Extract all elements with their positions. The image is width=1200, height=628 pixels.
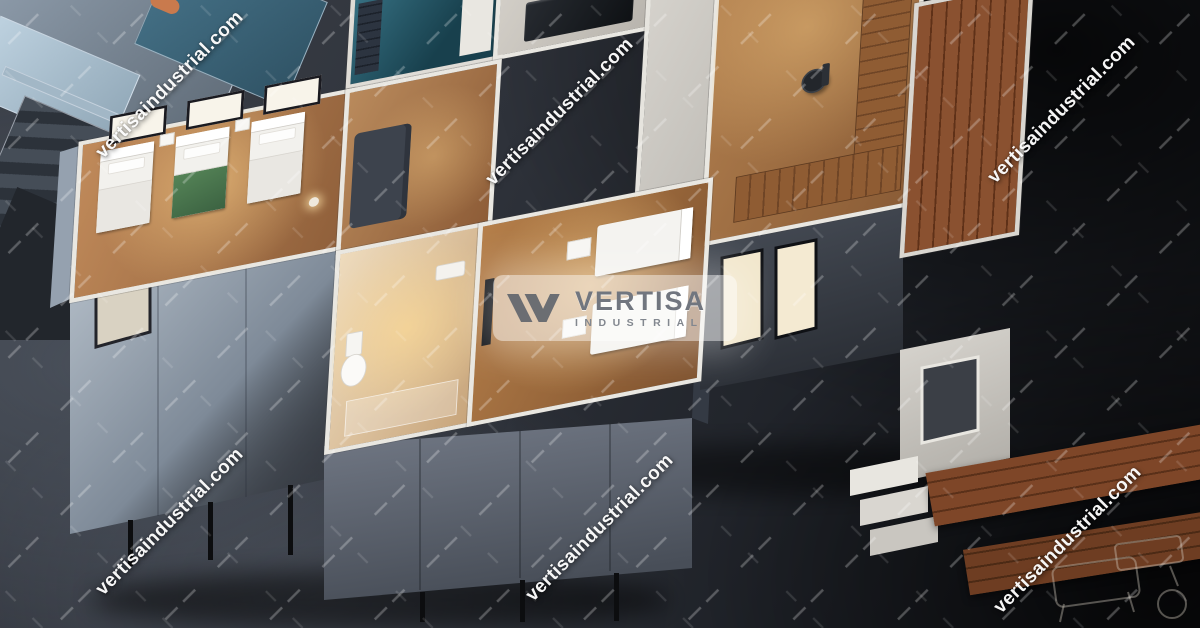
vertisa-logo-icon bbox=[507, 287, 565, 329]
logo-subtitle: INDUSTRIAL bbox=[575, 318, 706, 329]
logo-text: VERTISA INDUSTRIAL bbox=[575, 288, 706, 329]
screenshot-root: { "watermark": { "text": "vertisaindustr… bbox=[0, 0, 1200, 628]
logo-plate: VERTISA INDUSTRIAL bbox=[493, 275, 737, 341]
logo-brand: VERTISA bbox=[575, 288, 706, 315]
